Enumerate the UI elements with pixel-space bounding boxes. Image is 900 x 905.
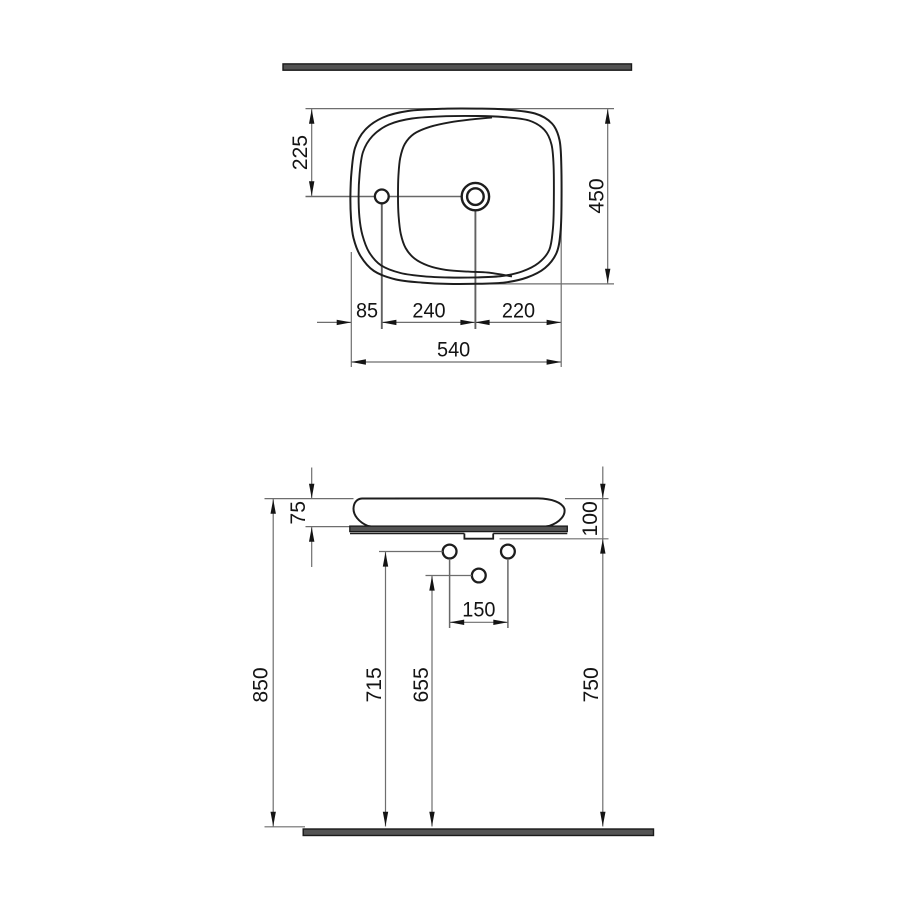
svg-text:240: 240 [412, 299, 445, 323]
svg-text:75: 75 [286, 501, 310, 525]
svg-text:100: 100 [578, 501, 602, 536]
svg-text:715: 715 [362, 667, 386, 702]
svg-text:655: 655 [409, 667, 433, 702]
svg-text:85: 85 [356, 299, 378, 323]
svg-text:225: 225 [288, 135, 312, 170]
svg-text:750: 750 [579, 667, 603, 702]
svg-text:150: 150 [462, 598, 495, 622]
svg-text:540: 540 [437, 338, 470, 362]
svg-text:450: 450 [584, 178, 608, 213]
svg-text:220: 220 [502, 299, 535, 323]
svg-text:850: 850 [248, 667, 272, 702]
